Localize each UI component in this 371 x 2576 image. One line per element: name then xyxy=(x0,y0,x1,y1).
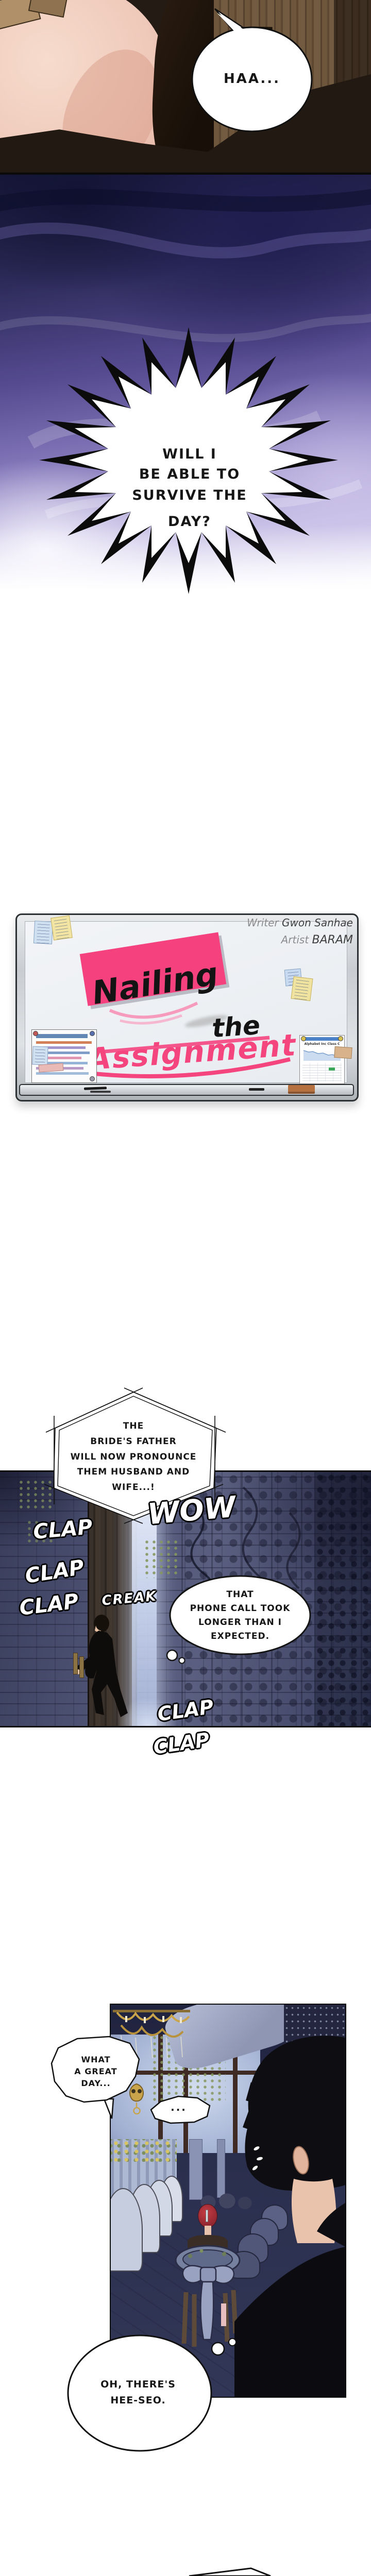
green-cell xyxy=(329,1067,335,1071)
board-eraser xyxy=(288,1085,315,1094)
thought-line: EXPECTED. xyxy=(211,1631,269,1641)
haa-text: HAA... xyxy=(224,71,280,87)
marker xyxy=(249,1088,264,1091)
caption-line: THEM HUSBAND AND xyxy=(77,1467,190,1477)
sticky-note-yellow xyxy=(50,916,73,941)
pin-red xyxy=(33,1031,38,1036)
webtoon-page: HAA... WILL I BE ABLE TO SURVIVE THE DAY… xyxy=(0,0,371,2576)
left-chair-row xyxy=(111,2175,178,2270)
sfx-clap: CLAP xyxy=(152,1728,211,1759)
panel-bedroom: HAA... xyxy=(0,0,371,175)
hair-pin xyxy=(206,2210,208,2222)
thought-line: PHONE CALL TOOK xyxy=(190,1603,291,1614)
artist-name: BARAM xyxy=(312,934,353,946)
scream-burst-bubble xyxy=(19,321,359,609)
bubble-line: DAY... xyxy=(81,2078,110,2088)
foreground-man-head xyxy=(234,2025,345,2397)
burst-line: DAY? xyxy=(168,514,211,530)
writer-name: Gwon Sanhae xyxy=(282,917,353,929)
pin-gray xyxy=(90,1076,95,1081)
sticky-note-blue xyxy=(32,1046,48,1065)
next-bubble-tip xyxy=(180,2563,278,2576)
pin-gold xyxy=(301,1036,306,1041)
pink-strike-underline xyxy=(79,1028,316,1090)
burst-line: WILL I xyxy=(162,446,217,462)
pin-gold xyxy=(338,1036,343,1041)
stock-chart-title: Alphabet Inc Class C xyxy=(305,1042,340,1046)
bubble-line: A GREAT xyxy=(74,2066,117,2076)
artist-label: Artist xyxy=(281,934,309,946)
credit-artist: Artist BARAM xyxy=(239,934,353,946)
ellipsis-text: ... xyxy=(171,2101,187,2113)
pin-blue xyxy=(90,1031,95,1036)
haa-speech-bubble xyxy=(188,3,317,135)
door-handle xyxy=(79,1656,84,1678)
writer-label: Writer xyxy=(247,917,279,929)
thought-line: LONGER THAN I xyxy=(198,1617,282,1628)
sticky-note-yellow xyxy=(291,976,313,1001)
burst-line: SURVIVE THE xyxy=(132,487,247,503)
door-handle xyxy=(73,1653,78,1674)
credit-writer: Writer Gwon Sanhae xyxy=(239,917,353,929)
heeseo-line: OH, THERE'S xyxy=(100,2379,176,2390)
bubble-line: WHAT xyxy=(81,2055,110,2064)
caption-line: WILL NOW PRONOUNCE xyxy=(71,1452,197,1462)
caption-line: THE xyxy=(123,1421,144,1431)
speech-bubble-great-day xyxy=(49,2034,143,2122)
caption-line: BRIDE'S FATHER xyxy=(90,1436,177,1447)
sticky-note-blue xyxy=(33,921,53,944)
iron-gate-column xyxy=(314,1472,371,1726)
sneaking-man xyxy=(67,1612,144,1726)
marker xyxy=(90,1091,111,1093)
tan-sticky xyxy=(334,1046,352,1059)
pinned-stock-chart: Alphabet Inc Class C xyxy=(299,1035,345,1084)
caption-line: WIFE...! xyxy=(112,1482,155,1493)
burst-line: BE ABLE TO xyxy=(139,466,240,482)
thought-line: THAT xyxy=(226,1589,254,1600)
title-whiteboard: Writer Gwon Sanhae Artist BARAM Nailing … xyxy=(15,913,359,1101)
heeseo-line: HEE-SEO. xyxy=(110,2395,165,2406)
